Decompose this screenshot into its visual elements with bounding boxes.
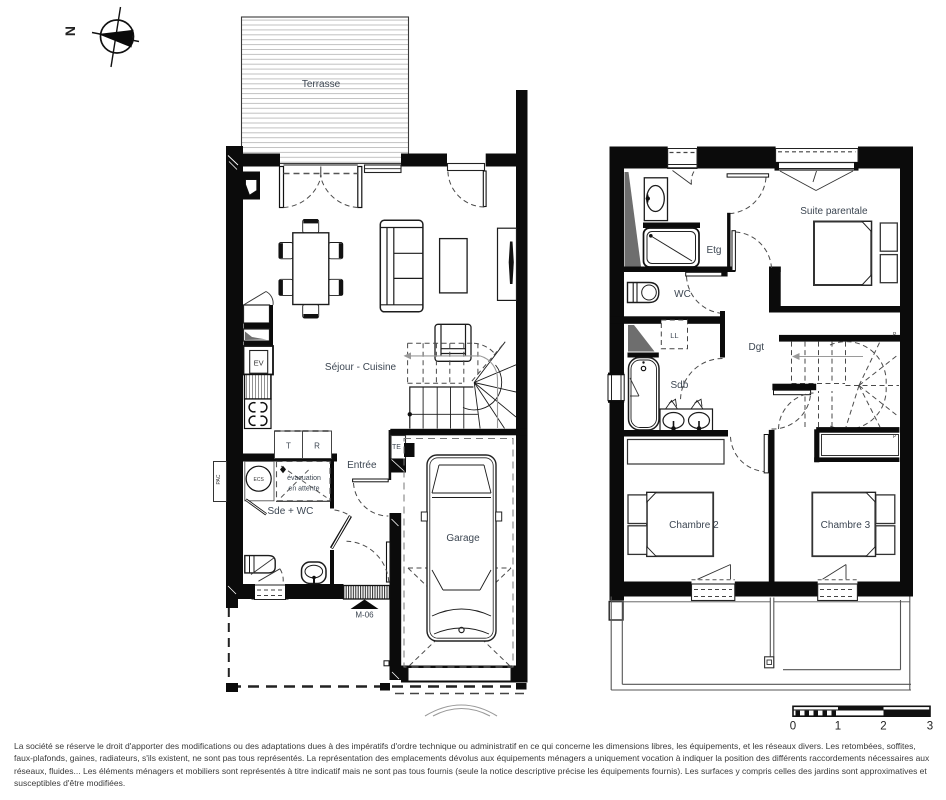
svg-text:0: 0 <box>790 721 796 733</box>
svg-text:ECS: ECS <box>254 477 265 483</box>
svg-text:Dgt: Dgt <box>749 342 765 353</box>
svg-text:TE: TE <box>392 444 401 451</box>
svg-text:M-06: M-06 <box>355 611 374 620</box>
svg-text:en attente: en attente <box>288 486 319 493</box>
svg-text:évacuation: évacuation <box>287 475 321 482</box>
svg-text:Sde + WC: Sde + WC <box>267 506 313 517</box>
svg-text:PAC: PAC <box>216 474 222 484</box>
svg-text:Etg: Etg <box>706 245 721 256</box>
svg-text:Chambre 3: Chambre 3 <box>821 520 871 531</box>
svg-text:Garage: Garage <box>446 533 480 544</box>
svg-text:Chambre 2: Chambre 2 <box>669 520 719 531</box>
svg-text:Sdb: Sdb <box>671 380 689 391</box>
svg-text:Séjour - Cuisine: Séjour - Cuisine <box>325 362 397 373</box>
svg-text:1: 1 <box>835 721 841 733</box>
svg-text:R: R <box>314 442 320 451</box>
svg-text:3: 3 <box>927 721 933 733</box>
svg-text:N: N <box>62 26 78 36</box>
svg-text:Entrée: Entrée <box>347 460 377 471</box>
svg-text:2: 2 <box>880 721 886 733</box>
svg-text:WC: WC <box>674 289 691 300</box>
svg-text:Terrasse: Terrasse <box>302 79 341 90</box>
svg-text:EV: EV <box>254 359 264 368</box>
svg-text:Suite parentale: Suite parentale <box>800 206 868 217</box>
svg-text:T: T <box>286 442 291 451</box>
svg-text:LL: LL <box>670 331 678 340</box>
